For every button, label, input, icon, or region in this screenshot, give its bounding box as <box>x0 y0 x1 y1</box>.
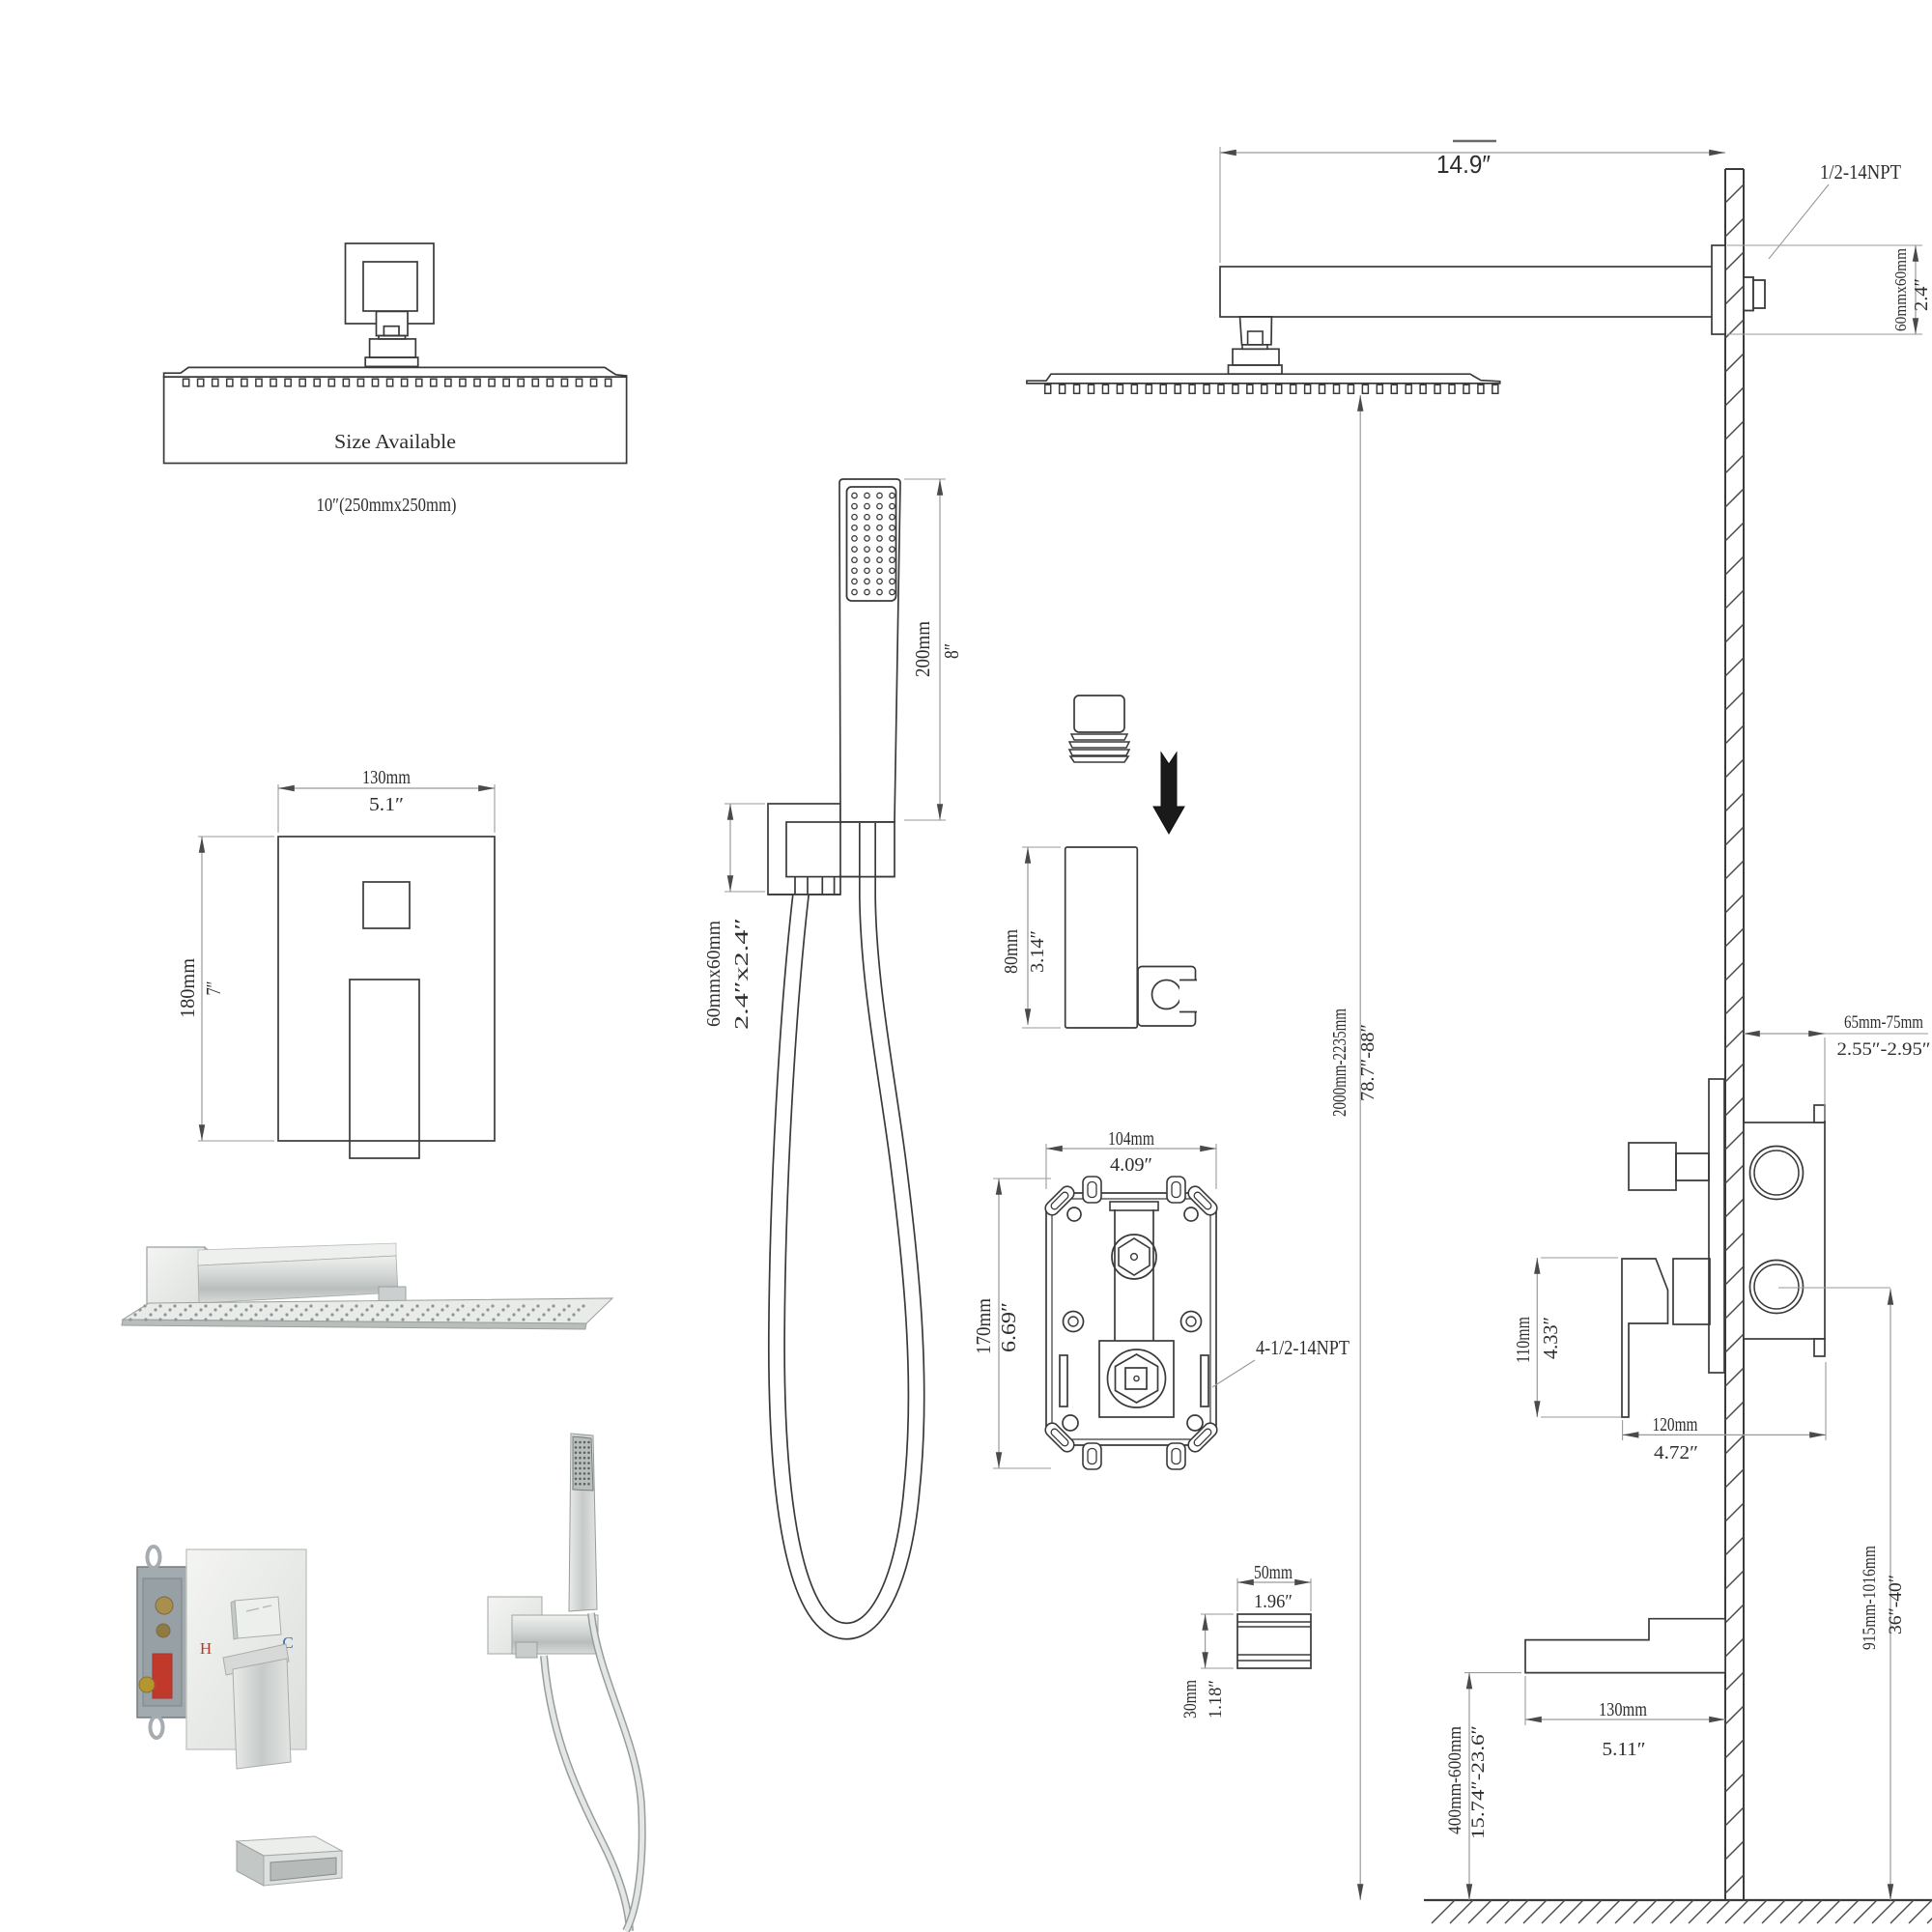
svg-text:4.72″: 4.72″ <box>1654 1442 1698 1463</box>
svg-text:50mm: 50mm <box>1254 1562 1293 1583</box>
svg-text:78.7″-88″: 78.7″-88″ <box>1357 1024 1378 1101</box>
svg-text:7″: 7″ <box>202 981 225 996</box>
svg-text:14.9″: 14.9″ <box>1436 150 1491 179</box>
svg-text:104mm: 104mm <box>1108 1128 1154 1150</box>
svg-text:60mmx60mm: 60mmx60mm <box>703 921 724 1027</box>
svg-text:130mm: 130mm <box>362 767 411 788</box>
svg-text:170mm: 170mm <box>972 1298 995 1354</box>
svg-text:130mm: 130mm <box>1599 1699 1647 1720</box>
svg-text:180mm: 180mm <box>176 958 199 1018</box>
svg-text:2.4″x2.4″: 2.4″x2.4″ <box>731 918 753 1030</box>
svg-text:30mm: 30mm <box>1180 1680 1201 1719</box>
svg-text:5.11″: 5.11″ <box>1603 1739 1646 1760</box>
svg-text:15.74″-23.6″: 15.74″-23.6″ <box>1468 1725 1489 1839</box>
svg-text:10″(250mmx250mm): 10″(250mmx250mm) <box>317 495 457 516</box>
svg-text:H: H <box>200 1639 212 1658</box>
svg-text:Size Available: Size Available <box>334 430 456 453</box>
svg-text:8″: 8″ <box>940 643 963 659</box>
svg-text:65mm-75mm: 65mm-75mm <box>1844 1012 1923 1033</box>
svg-text:4.09″: 4.09″ <box>1110 1154 1152 1176</box>
svg-text:6.69″: 6.69″ <box>997 1302 1020 1352</box>
svg-text:110mm: 110mm <box>1513 1317 1534 1363</box>
svg-text:1.18″: 1.18″ <box>1206 1680 1226 1719</box>
svg-text:3.14″: 3.14″ <box>1027 930 1048 973</box>
svg-text:400mm-600mm: 400mm-600mm <box>1445 1726 1465 1834</box>
svg-text:915mm-1016mm: 915mm-1016mm <box>1860 1546 1880 1650</box>
svg-text:2.4″: 2.4″ <box>1911 278 1932 311</box>
svg-text:1.96″: 1.96″ <box>1254 1591 1293 1612</box>
svg-text:4-1/2-14NPT: 4-1/2-14NPT <box>1256 1336 1350 1359</box>
svg-text:2.55″-2.95″: 2.55″-2.95″ <box>1837 1039 1931 1060</box>
svg-text:2000mm-2235mm: 2000mm-2235mm <box>1329 1009 1350 1117</box>
svg-text:120mm: 120mm <box>1653 1414 1698 1435</box>
svg-text:1/2-14NPT: 1/2-14NPT <box>1820 160 1901 184</box>
svg-text:36″-40″: 36″-40″ <box>1886 1575 1906 1634</box>
svg-text:60mmx60mm: 60mmx60mm <box>1891 248 1910 331</box>
svg-text:5.1″: 5.1″ <box>369 794 404 815</box>
svg-text:4.33″: 4.33″ <box>1539 1317 1562 1359</box>
svg-text:200mm: 200mm <box>911 621 934 677</box>
svg-text:80mm: 80mm <box>1001 929 1022 974</box>
